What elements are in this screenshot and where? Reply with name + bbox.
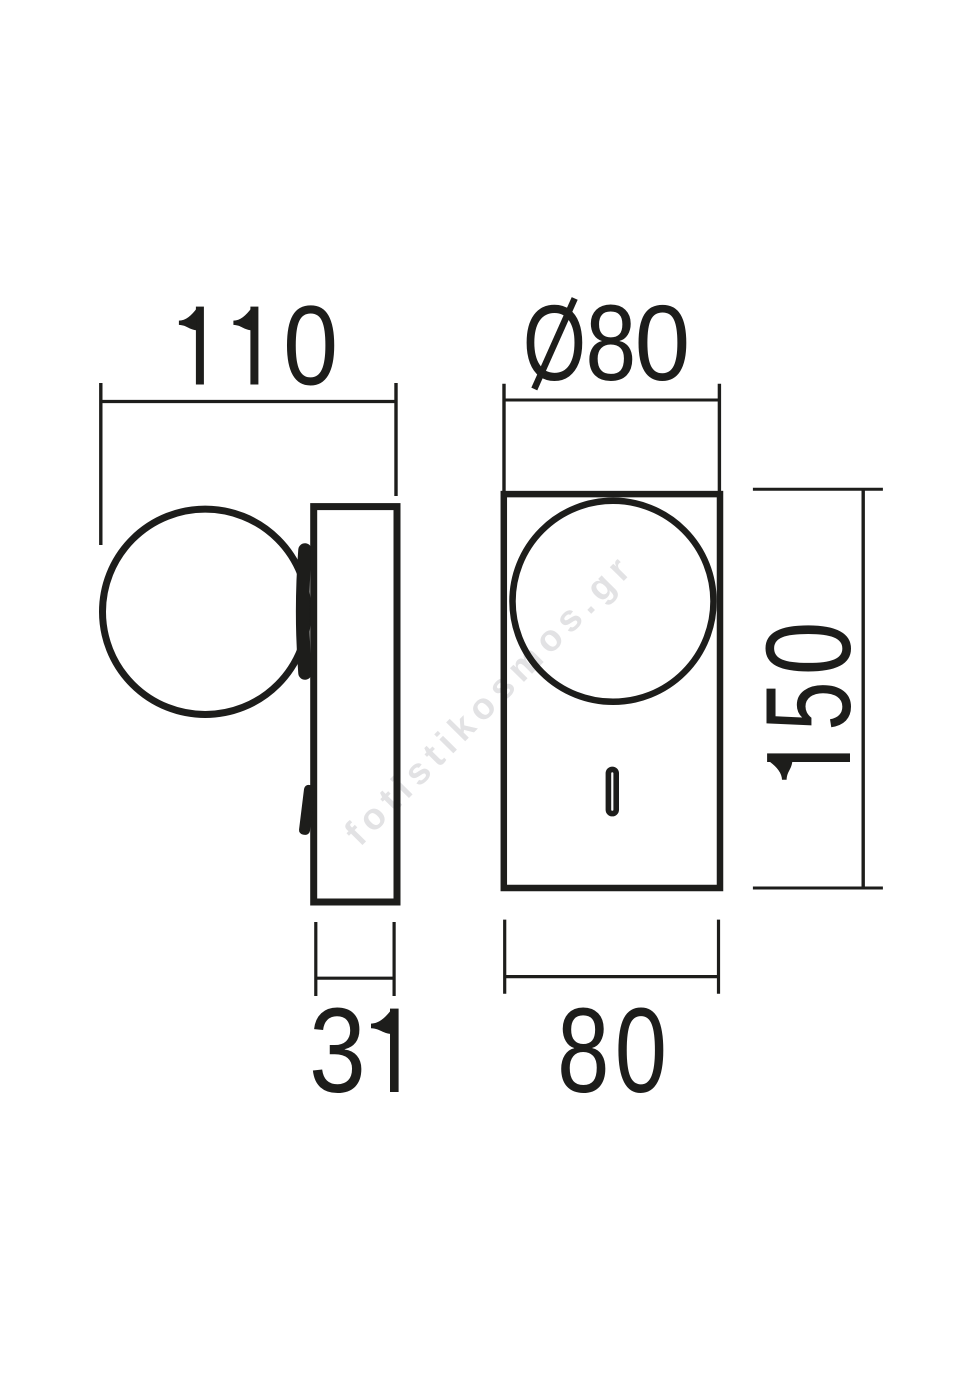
svg-text:3: 3	[309, 983, 366, 1118]
svg-text:0: 0	[742, 622, 877, 676]
svg-text:8: 8	[585, 284, 636, 404]
svg-text:8: 8	[557, 983, 609, 1118]
svg-text:0: 0	[283, 282, 338, 409]
svg-text:0: 0	[615, 983, 667, 1118]
svg-text:0: 0	[635, 283, 691, 403]
svg-text:5: 5	[742, 681, 876, 730]
